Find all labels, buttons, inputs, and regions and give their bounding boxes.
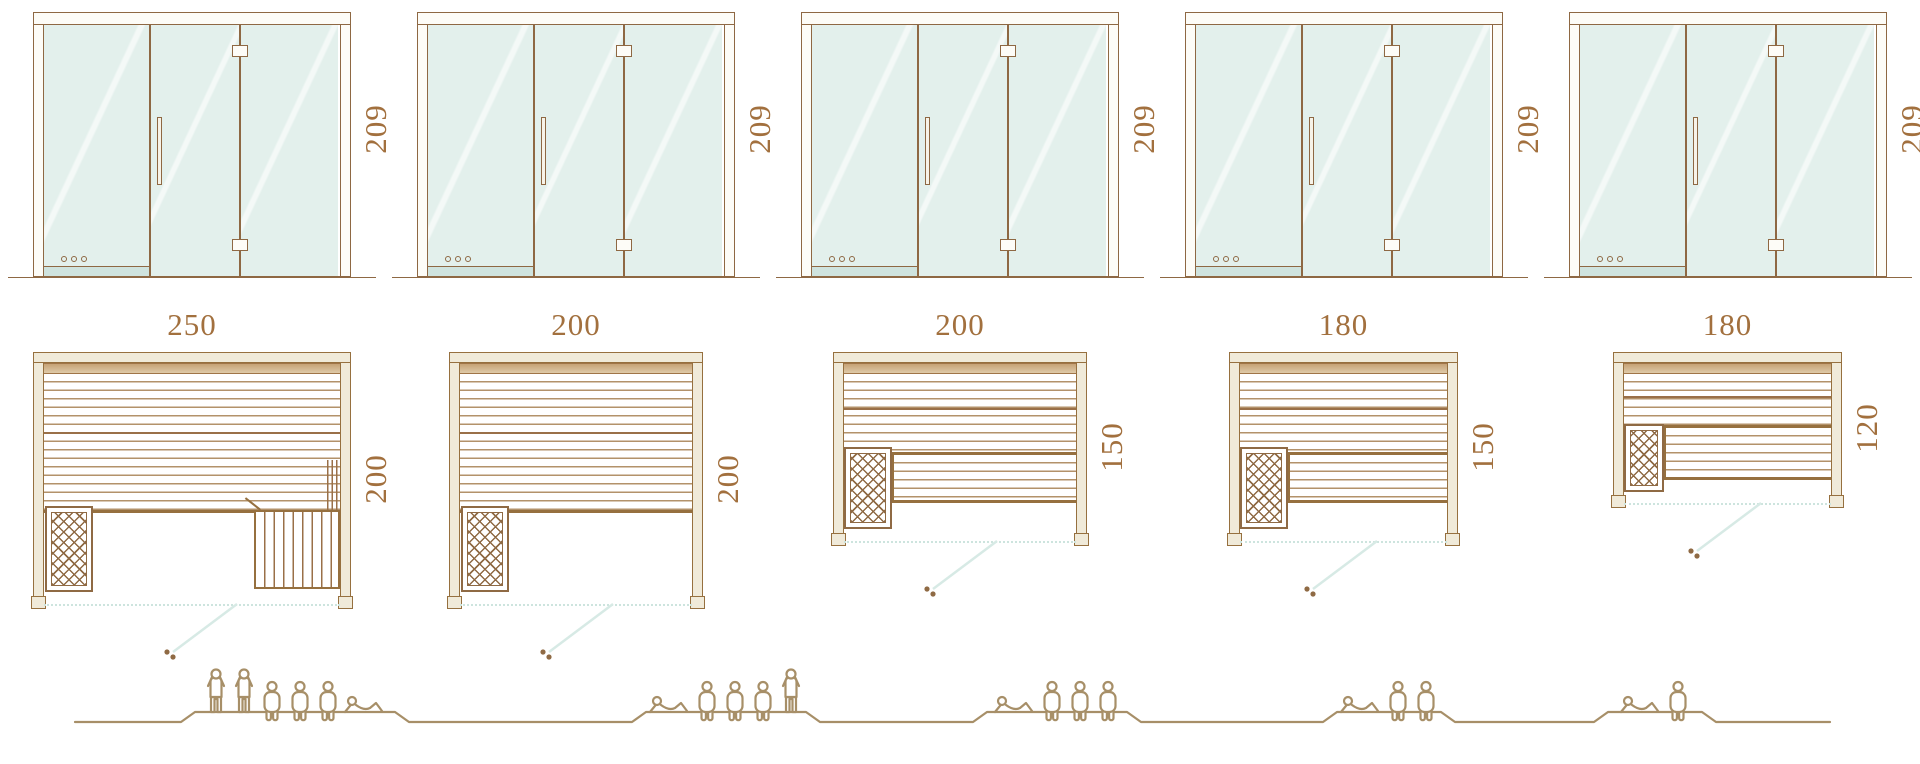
model-column-180x150: 209 180 150 bbox=[1152, 0, 1536, 764]
lower-bench bbox=[1664, 428, 1831, 480]
wall bbox=[340, 352, 351, 606]
wall bbox=[1613, 352, 1842, 363]
wall-foot bbox=[831, 533, 846, 546]
door-frame-post bbox=[1108, 12, 1119, 277]
glass-front bbox=[812, 25, 1108, 277]
person-standing-icon bbox=[236, 670, 252, 713]
door-frame-post bbox=[1185, 12, 1196, 277]
person-lying-icon bbox=[995, 697, 1032, 712]
model-column-200x200: 209 200 200 bbox=[384, 0, 768, 764]
door-frame-post bbox=[724, 12, 735, 277]
door-hinge-icon bbox=[616, 239, 632, 251]
ground-line bbox=[1544, 277, 1912, 278]
wall-foot bbox=[1445, 533, 1460, 546]
plan-width-dimension: 180 bbox=[1229, 306, 1458, 344]
wall bbox=[833, 352, 844, 543]
glass-front bbox=[44, 25, 340, 277]
door-swing bbox=[111, 602, 243, 664]
door-frame-post bbox=[801, 12, 812, 277]
glass-sill bbox=[812, 266, 917, 276]
plan-view bbox=[33, 352, 351, 606]
glass-panel-right bbox=[1007, 25, 1106, 276]
door-panel bbox=[149, 25, 239, 276]
glass-sill bbox=[1196, 266, 1301, 276]
person-standing-icon bbox=[783, 670, 799, 713]
bench-top-view bbox=[460, 374, 692, 513]
vent-holes-icon bbox=[829, 256, 855, 262]
door-handle-icon bbox=[1693, 117, 1698, 185]
bench-top-view bbox=[844, 374, 1076, 455]
plan-interior bbox=[460, 363, 692, 606]
door-hinge-icon bbox=[232, 239, 248, 251]
door-handle-icon bbox=[925, 117, 930, 185]
bench-top-view bbox=[44, 374, 340, 513]
glass-panel-left bbox=[1196, 25, 1301, 276]
bench-edge bbox=[1624, 396, 1831, 398]
plan-interior bbox=[1240, 363, 1447, 543]
plan-depth-dimension: 200 bbox=[711, 444, 745, 514]
capacity-figures bbox=[0, 660, 1920, 764]
door-handle-icon bbox=[541, 117, 546, 185]
side-bench-slats bbox=[327, 460, 340, 512]
door-frame-post bbox=[340, 12, 351, 277]
glass-panel-right bbox=[623, 25, 722, 276]
lower-bench bbox=[1288, 455, 1447, 503]
person-seated-icon bbox=[265, 682, 280, 720]
vent-holes-icon bbox=[445, 256, 471, 262]
door-elevation bbox=[1185, 12, 1503, 277]
person-lying-icon bbox=[1341, 697, 1378, 712]
wall-foot bbox=[1227, 533, 1242, 546]
wall bbox=[1076, 352, 1087, 543]
person-seated-icon bbox=[293, 682, 308, 720]
glass-front-line bbox=[44, 604, 340, 606]
heater-icon bbox=[1624, 424, 1664, 492]
heater-icon bbox=[45, 506, 93, 592]
door-panel bbox=[1685, 25, 1775, 276]
door-frame-post bbox=[417, 12, 428, 277]
person-lying-icon bbox=[345, 697, 382, 712]
wall-foot bbox=[447, 596, 462, 609]
model-column-250x200: 209 250 bbox=[0, 0, 384, 764]
door-frame-beam bbox=[801, 12, 1119, 25]
wall bbox=[1831, 352, 1842, 505]
door-elevation bbox=[417, 12, 735, 277]
person-seated-icon bbox=[728, 682, 743, 720]
person-seated-icon bbox=[1073, 682, 1088, 720]
glass-front-line bbox=[460, 604, 692, 606]
bench-top-view bbox=[1624, 374, 1831, 428]
plan-width-dimension: 180 bbox=[1613, 306, 1842, 344]
door-hinge-icon bbox=[616, 45, 632, 57]
glass-front bbox=[1580, 25, 1876, 277]
wall bbox=[1613, 352, 1624, 505]
vent-holes-icon bbox=[1597, 256, 1623, 262]
glass-panel-left bbox=[812, 25, 917, 276]
wall-foot bbox=[1611, 495, 1626, 508]
door-elevation bbox=[801, 12, 1119, 277]
door-handle-icon bbox=[157, 117, 162, 185]
door-frame-beam bbox=[1185, 12, 1503, 25]
bench-profile-line bbox=[75, 712, 1830, 722]
glass-panel-right bbox=[1775, 25, 1874, 276]
door-elevation bbox=[33, 12, 351, 277]
bench-top-view bbox=[1240, 374, 1447, 455]
wall bbox=[1229, 352, 1458, 363]
glass-panel-right bbox=[239, 25, 338, 276]
glass-front-line bbox=[844, 541, 1076, 543]
door-elevation bbox=[1569, 12, 1887, 277]
door-height-dimension: 209 bbox=[1895, 94, 1920, 164]
glass-front bbox=[1196, 25, 1492, 277]
door-panel bbox=[1301, 25, 1391, 276]
wall bbox=[449, 352, 703, 363]
bench-backrest bbox=[1240, 363, 1447, 374]
glass-sill bbox=[428, 266, 533, 276]
person-seated-icon bbox=[756, 682, 771, 720]
bench-backrest bbox=[1624, 363, 1831, 374]
door-hinge-icon bbox=[1000, 45, 1016, 57]
plan-width-dimension: 200 bbox=[449, 306, 703, 344]
person-seated-icon bbox=[321, 682, 336, 720]
heater-icon bbox=[461, 506, 509, 592]
wall bbox=[1229, 352, 1240, 543]
plan-interior bbox=[1624, 363, 1831, 505]
glass-front bbox=[428, 25, 724, 277]
door-panel bbox=[917, 25, 1007, 276]
plan-interior bbox=[44, 363, 340, 606]
wall-foot bbox=[31, 596, 46, 609]
heater-icon bbox=[1240, 447, 1288, 529]
door-frame-post bbox=[1569, 12, 1580, 277]
plan-width-dimension: 250 bbox=[33, 306, 351, 344]
glass-front-line bbox=[1624, 503, 1831, 505]
glass-panel-left bbox=[1580, 25, 1685, 276]
person-seated-icon bbox=[1101, 682, 1116, 720]
wall-foot bbox=[1074, 533, 1089, 546]
door-hinge-icon bbox=[1768, 45, 1784, 57]
wall bbox=[692, 352, 703, 606]
wall bbox=[33, 352, 44, 606]
door-hinge-icon bbox=[232, 45, 248, 57]
door-frame-beam bbox=[33, 12, 351, 25]
ground-line bbox=[392, 277, 760, 278]
vent-holes-icon bbox=[61, 256, 87, 262]
door-frame-beam bbox=[1569, 12, 1887, 25]
person-seated-icon bbox=[700, 682, 715, 720]
bench-backrest bbox=[460, 363, 692, 374]
plan-width-dimension: 200 bbox=[833, 306, 1087, 344]
wall-foot bbox=[338, 596, 353, 609]
door-swing bbox=[871, 539, 1003, 601]
door-swing bbox=[1251, 539, 1383, 601]
heater-icon bbox=[844, 447, 892, 529]
door-hinge-icon bbox=[1768, 239, 1784, 251]
glass-panel-right bbox=[1391, 25, 1490, 276]
plan-view bbox=[1613, 352, 1842, 505]
bench-backrest bbox=[44, 363, 340, 374]
wall-foot bbox=[1829, 495, 1844, 508]
ground-line bbox=[776, 277, 1144, 278]
door-frame-beam bbox=[417, 12, 735, 25]
person-lying-icon bbox=[1621, 697, 1658, 712]
door-hinge-icon bbox=[1384, 239, 1400, 251]
glass-sill bbox=[1580, 266, 1685, 276]
door-handle-icon bbox=[1309, 117, 1314, 185]
door-panel bbox=[533, 25, 623, 276]
wall bbox=[33, 352, 351, 363]
bench-edge bbox=[1240, 408, 1447, 410]
vent-holes-icon bbox=[1213, 256, 1239, 262]
wall bbox=[833, 352, 1087, 363]
bench-edge bbox=[460, 432, 692, 434]
door-swing bbox=[487, 602, 619, 664]
person-seated-icon bbox=[1671, 682, 1686, 720]
step-bench bbox=[254, 510, 340, 589]
bench-backrest bbox=[844, 363, 1076, 374]
person-lying-icon bbox=[650, 697, 687, 712]
glass-sill bbox=[44, 266, 149, 276]
wall bbox=[449, 352, 460, 606]
bench-edge bbox=[844, 408, 1076, 410]
plan-view bbox=[449, 352, 703, 606]
glass-panel-left bbox=[44, 25, 149, 276]
plan-view bbox=[833, 352, 1087, 543]
plan-view bbox=[1229, 352, 1458, 543]
person-seated-icon bbox=[1045, 682, 1060, 720]
bench-edge bbox=[44, 432, 340, 434]
door-hinge-icon bbox=[1384, 45, 1400, 57]
lower-bench bbox=[892, 455, 1076, 503]
door-hinge-icon bbox=[1000, 239, 1016, 251]
door-swing bbox=[1635, 501, 1767, 563]
door-frame-post bbox=[1876, 12, 1887, 277]
door-frame-post bbox=[33, 12, 44, 277]
person-seated-icon bbox=[1419, 682, 1434, 720]
wall-foot bbox=[690, 596, 705, 609]
plan-depth-dimension: 150 bbox=[1466, 412, 1500, 482]
plan-depth-dimension: 120 bbox=[1850, 393, 1884, 463]
person-standing-icon bbox=[208, 670, 224, 713]
model-column-180x120: 209 180 120 bbox=[1536, 0, 1920, 764]
ground-line bbox=[8, 277, 376, 278]
door-frame-post bbox=[1492, 12, 1503, 277]
glass-front-line bbox=[1240, 541, 1447, 543]
ground-line bbox=[1160, 277, 1528, 278]
wall bbox=[1447, 352, 1458, 543]
sauna-size-diagram: 209 250 bbox=[0, 0, 1920, 764]
model-column-200x150: 209 200 150 bbox=[768, 0, 1152, 764]
glass-panel-left bbox=[428, 25, 533, 276]
plan-interior bbox=[844, 363, 1076, 543]
plan-depth-dimension: 150 bbox=[1095, 412, 1129, 482]
person-seated-icon bbox=[1391, 682, 1406, 720]
